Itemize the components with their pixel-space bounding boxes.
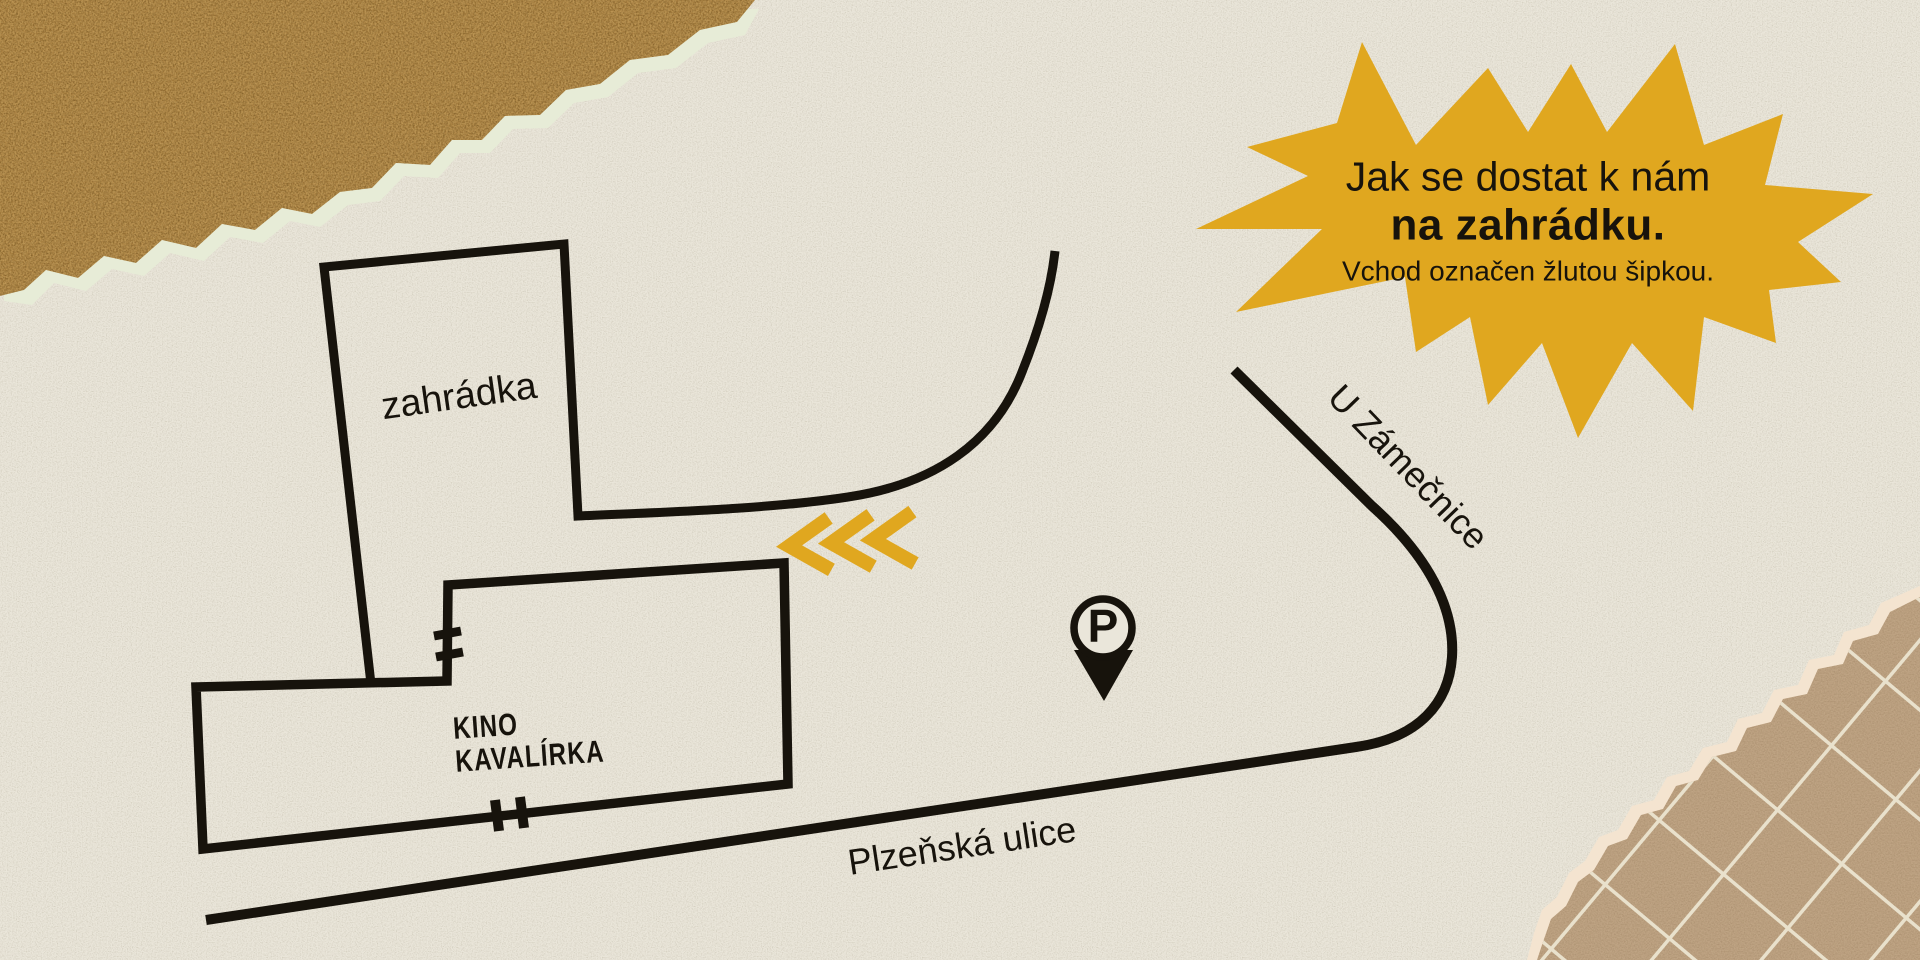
callout-text: Jak se dostat k nám na zahrádku. Vchod o…: [1248, 155, 1808, 288]
parking-letter: P: [1088, 599, 1119, 653]
callout-line-2: na zahrádku.: [1248, 201, 1808, 250]
callout-line-3: Vchod označen žlutou šipkou.: [1248, 256, 1808, 287]
cinema-label: KINO KAVALÍRKA: [452, 702, 606, 779]
map-canvas: [0, 0, 1920, 960]
venue-map-poster: zahrádka KINO KAVALÍRKA U Zámečnice Plze…: [0, 0, 1920, 960]
callout-line-1: Jak se dostat k nám: [1248, 155, 1808, 201]
